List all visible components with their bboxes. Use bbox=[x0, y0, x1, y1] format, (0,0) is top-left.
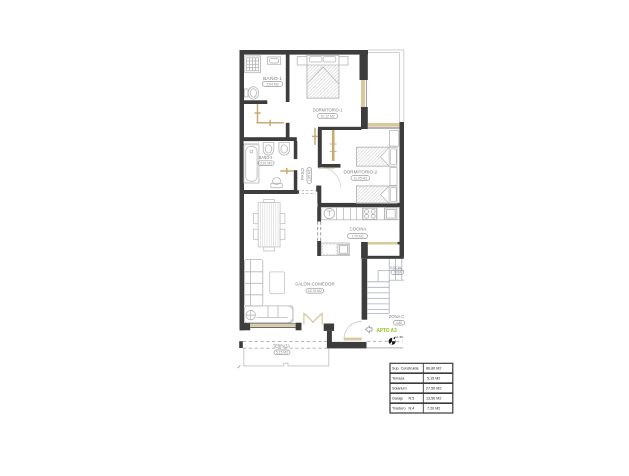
svg-text:5,15 M2: 5,15 M2 bbox=[276, 351, 288, 355]
svg-text:N:4: N:4 bbox=[409, 407, 415, 411]
svg-text:+1,50: +1,50 bbox=[395, 335, 403, 339]
svg-text:TERRAZA: TERRAZA bbox=[273, 343, 290, 348]
svg-text:2,94 M2: 2,94 M2 bbox=[266, 82, 278, 86]
svg-text:N:5: N:5 bbox=[409, 397, 415, 401]
svg-text:5,15 M2: 5,15 M2 bbox=[427, 377, 440, 381]
svg-text:1,85 M2: 1,85 M2 bbox=[308, 169, 312, 181]
svg-text:DORMITORIO-2: DORMITORIO-2 bbox=[343, 169, 377, 174]
svg-text:Sup. Construida: Sup. Construida bbox=[392, 367, 419, 371]
svg-text:ZONA C: ZONA C bbox=[389, 314, 405, 319]
svg-text:3,91 M2: 3,91 M2 bbox=[260, 161, 272, 165]
svg-text:ESCAL: ESCAL bbox=[390, 266, 402, 270]
svg-text:Solarium: Solarium bbox=[392, 387, 407, 391]
svg-text:7,20 M2: 7,20 M2 bbox=[427, 407, 440, 411]
svg-text:BAÑO-2: BAÑO-2 bbox=[259, 155, 273, 160]
svg-text:DORMITORIO-1: DORMITORIO-1 bbox=[313, 107, 343, 112]
svg-text:SALÓN-COMEDOR: SALÓN-COMEDOR bbox=[295, 281, 335, 287]
svg-text:Trastero: Trastero bbox=[392, 407, 406, 411]
svg-text:86,80 M2: 86,80 M2 bbox=[426, 367, 441, 371]
svg-text:7,75 M2: 7,75 M2 bbox=[351, 235, 363, 239]
svg-text:11,05 M2: 11,05 M2 bbox=[353, 176, 367, 180]
svg-text:13,56 M2: 13,56 M2 bbox=[426, 397, 441, 401]
svg-text:COM: COM bbox=[394, 271, 402, 275]
svg-text:BAÑO-1: BAÑO-1 bbox=[263, 76, 283, 81]
svg-text:APTO A3: APTO A3 bbox=[377, 328, 397, 334]
svg-text:15,76 M2: 15,76 M2 bbox=[308, 289, 322, 293]
svg-text:10,12 M2: 10,12 M2 bbox=[321, 114, 335, 118]
svg-text:Garaje: Garaje bbox=[392, 397, 403, 401]
svg-text:COCINA: COCINA bbox=[350, 226, 368, 231]
svg-text:PASO: PASO bbox=[300, 167, 305, 179]
svg-text:Terraza: Terraza bbox=[392, 377, 405, 381]
svg-text:4,82: 4,82 bbox=[396, 321, 402, 325]
svg-text:27,50 M2: 27,50 M2 bbox=[426, 387, 441, 391]
